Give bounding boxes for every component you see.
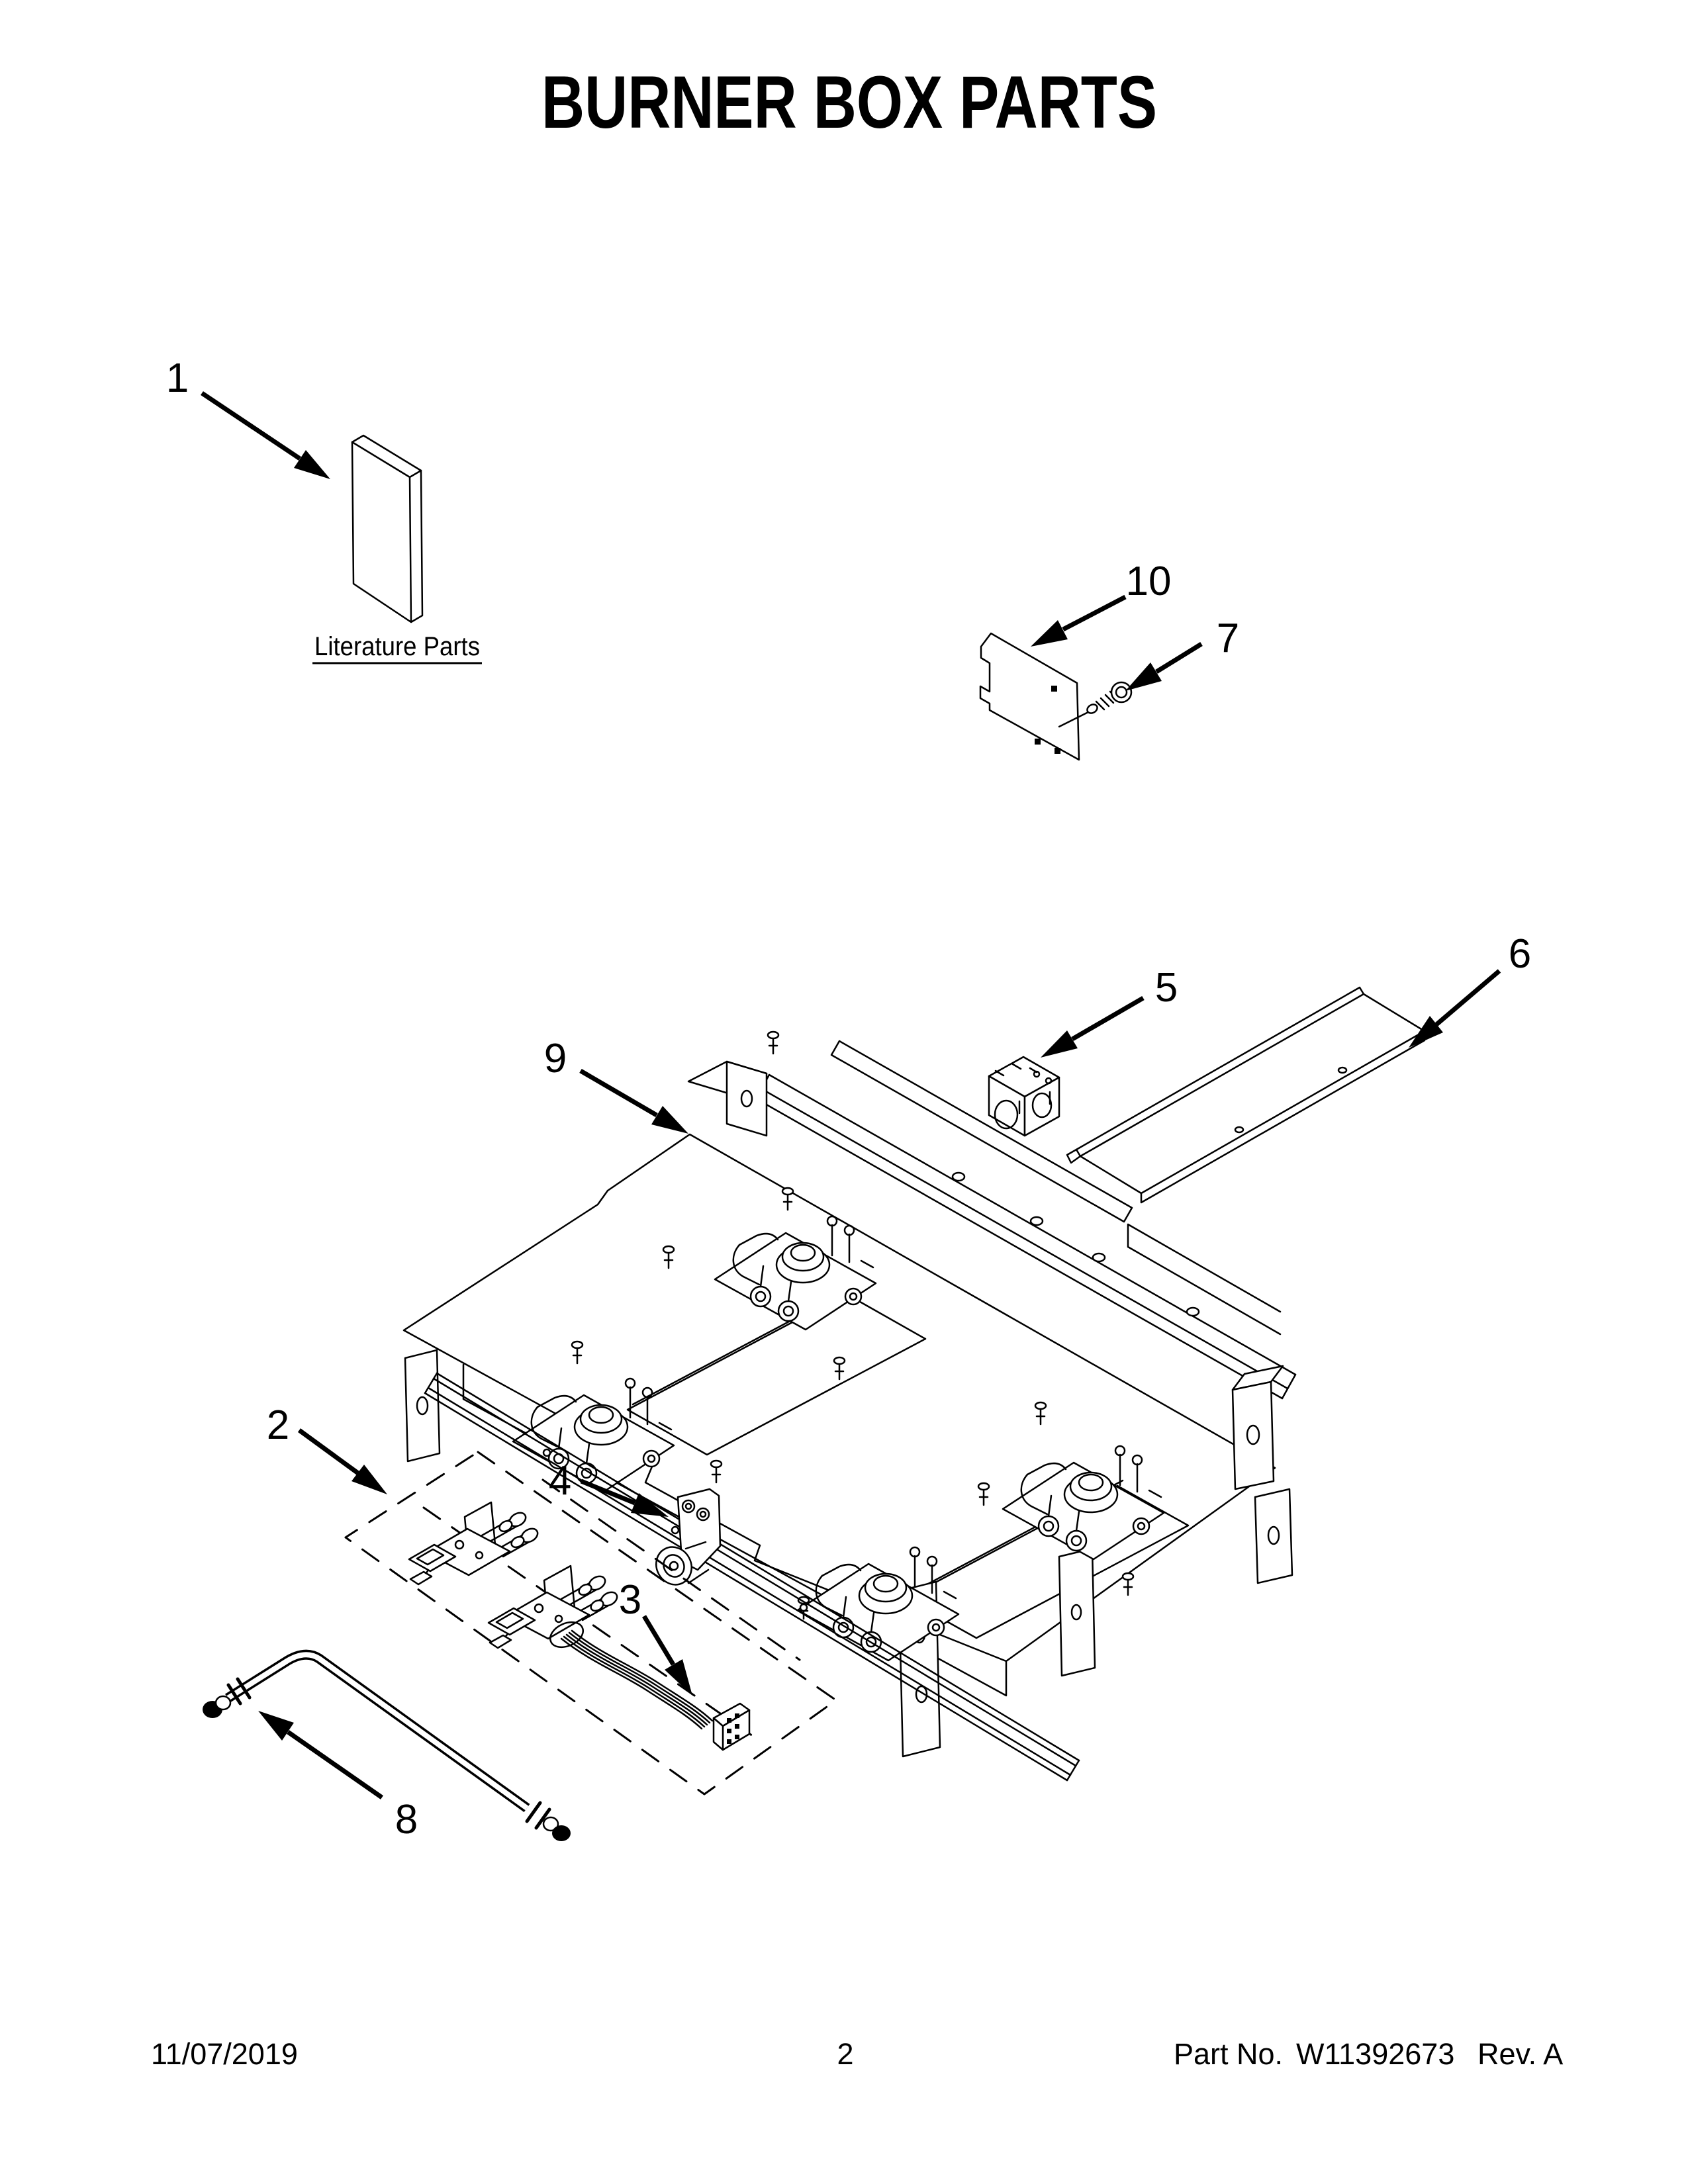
literature-caption: Literature Parts: [314, 632, 480, 661]
leader-arrow-3: [644, 1616, 692, 1696]
leader-arrow-10: [1031, 597, 1125, 647]
pressure-regulator-bracket: [649, 1489, 720, 1591]
leader-arrow-8: [258, 1711, 382, 1797]
parts-diagram: Literature Parts: [0, 0, 1688, 2184]
footer-date: 11/07/2019: [151, 2037, 298, 2071]
spark-module: [989, 1057, 1059, 1136]
callout-5: 5: [1155, 965, 1178, 1011]
callout-9: 9: [544, 1036, 567, 1081]
callout-2: 2: [267, 1402, 289, 1448]
footer-page-number: 2: [837, 2037, 853, 2071]
gas-tube: [203, 1655, 571, 1841]
gas-valve-cluster: [489, 1566, 620, 1648]
literature-booklet: [352, 435, 422, 622]
callout-1: 1: [166, 355, 189, 401]
callout-10: 10: [1126, 559, 1172, 604]
leader-arrow-7: [1125, 644, 1201, 691]
footer: 11/07/2019 2 Part No. W11392673 Rev. A: [151, 2037, 1563, 2071]
leader-arrow-1: [202, 393, 330, 479]
gas-valve-cluster: [409, 1502, 540, 1584]
callout-3: 3: [619, 1577, 641, 1623]
footer-part-no-label: Part No.: [1174, 2037, 1283, 2071]
callout-4: 4: [549, 1458, 571, 1504]
wire-harness: [546, 1617, 749, 1750]
leader-arrow-6: [1409, 971, 1499, 1048]
callout-8: 8: [395, 1797, 418, 1843]
control-board: [980, 633, 1079, 760]
footer-revision: Rev. A: [1477, 2037, 1563, 2071]
footer-part-no: W11392673: [1296, 2037, 1454, 2071]
leader-arrow-9: [581, 1071, 688, 1134]
burner-box-cover: [1067, 987, 1425, 1203]
leader-arrow-5: [1041, 998, 1143, 1058]
callout-7: 7: [1217, 615, 1239, 661]
callout-6: 6: [1509, 931, 1531, 977]
page-title: BURNER BOX PARTS: [541, 61, 1157, 144]
parts-catalog-page: Literature Parts: [0, 0, 1688, 2184]
leader-arrow-2: [299, 1430, 387, 1494]
